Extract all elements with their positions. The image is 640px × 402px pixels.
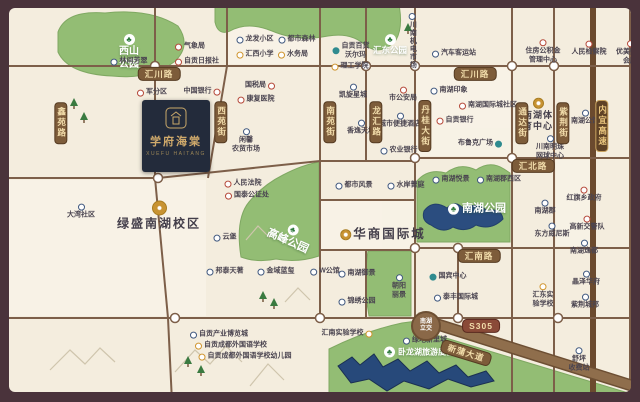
poi-text: 南湖郡西区 <box>486 176 521 185</box>
blue-poi-icon <box>581 240 588 247</box>
poi-text: 东方威尼斯 <box>535 231 570 240</box>
poi-text: 金域蓝玺 <box>267 268 295 277</box>
poi-text: 南湖郡 <box>535 208 556 217</box>
poi-label: 舒坪收费站 <box>569 347 590 373</box>
poi-label: 住房公积金管理中心 <box>526 39 561 65</box>
poi-text: 川南机电市场 <box>408 21 417 69</box>
blue-poi-icon <box>339 299 346 306</box>
poi-text: 住房公积金管理中心 <box>526 47 561 65</box>
red-poi-icon <box>400 87 407 94</box>
poi-text: 红旗乡政府 <box>567 195 602 204</box>
blue-poi-icon <box>388 183 395 190</box>
red-poi-icon <box>584 216 591 223</box>
poi-label: W公馆 <box>310 268 340 277</box>
red-poi-icon <box>627 40 632 47</box>
blue-poi-icon <box>279 37 286 44</box>
poi-label: 自贡成都外国语学校 <box>195 342 267 351</box>
property-logo: 学府海棠 XUEFU HAITANG <box>142 100 210 172</box>
red-poi-icon <box>238 97 245 104</box>
road-badge: 汇北路 <box>512 159 555 173</box>
red-poi-icon <box>137 90 144 97</box>
poi-text: 农业银行 <box>390 147 418 156</box>
poi-text: 城市便捷酒店 <box>379 121 421 130</box>
poi-label: 红旗乡政府 <box>567 187 602 204</box>
poi-label: 龙发小区 <box>237 36 274 45</box>
poi-text: 都市风景 <box>345 182 373 191</box>
poi-label: 水岸菁庭 <box>388 182 425 191</box>
red-poi-icon <box>214 89 221 96</box>
poi-label: 康复医院 <box>238 96 275 105</box>
park-tree-icon: ♣ <box>124 34 135 45</box>
yellow-poi-icon <box>199 354 206 361</box>
red-poi-icon <box>586 41 593 48</box>
poi-label: 汇东实验学校 <box>533 283 554 309</box>
poi-label: 高新交警队 <box>570 216 605 233</box>
poi-text: 布鲁克广场 <box>458 140 493 149</box>
poi-label: 优美购物会所 <box>616 40 631 66</box>
poi-text: 自贡银行 <box>446 117 474 126</box>
blue-poi-icon <box>542 200 549 207</box>
poi-text: 闲馨农贸市场 <box>232 136 260 154</box>
poi-text: 自贡日报社 <box>184 58 219 67</box>
poi-text: 邦泰天著 <box>216 268 244 277</box>
poi-label: 朝阳丽景 <box>392 274 406 300</box>
red-poi-icon <box>581 187 588 194</box>
poi-label: 晶泽华府 <box>572 271 600 288</box>
poi-text: 紫荆城邦 <box>571 302 599 311</box>
poi-text: 自贡产业博览城 <box>199 331 248 340</box>
poi-label: 城市便捷酒店 <box>379 113 421 130</box>
poi-label: 农业银行 <box>381 147 418 156</box>
poi-label: 南湖印象 <box>431 87 468 96</box>
blue-poi-icon <box>350 84 357 91</box>
blue-poi-icon <box>576 347 583 354</box>
park-label: ♣汇东公园 <box>373 34 407 56</box>
poi-label: 绿盛南湖校区 <box>117 201 201 232</box>
blue-poi-icon <box>432 51 439 58</box>
poi-label: 气象局 <box>175 43 205 52</box>
poi-label: 理工学院 <box>332 63 369 72</box>
poi-label: 自贡百货沃尔玛 <box>333 42 370 60</box>
blue-poi-icon <box>396 274 403 281</box>
poi-text: 晶泽华府 <box>572 279 600 288</box>
poi-text: 绿盛南湖校区 <box>117 217 201 232</box>
red-poi-icon <box>225 193 232 200</box>
poi-label: 自贡日报社 <box>175 58 219 67</box>
poi-text: 自贡百货沃尔玛 <box>342 42 370 60</box>
poi-label: 邦泰天著 <box>207 268 244 277</box>
poi-text: 华商国际城 <box>353 227 426 243</box>
poi-text: 国泰公证处 <box>234 192 269 201</box>
park-tree-icon: ♣ <box>448 203 459 214</box>
location-map: 学府海棠 XUEFU HAITANG ♣西山公园♣汇东公园♣高峰公园♣南湖公园♣… <box>9 8 631 392</box>
blue-poi-icon <box>549 223 556 230</box>
poi-text: 南湖悦景 <box>442 176 470 185</box>
poi-label: 汇西小学 <box>237 51 274 60</box>
blue-poi-icon <box>214 235 221 242</box>
blue-poi-icon <box>190 332 197 339</box>
poi-text: 都市森林 <box>288 36 316 45</box>
red-poi-icon <box>437 118 444 125</box>
poi-text: 南湖国际城社区 <box>468 102 517 111</box>
poi-text: 人民法院 <box>234 180 262 189</box>
poi-label: 自贡产业博览城 <box>190 331 248 340</box>
blue-poi-icon <box>339 271 346 278</box>
red-poi-icon <box>540 39 547 46</box>
blue-poi-icon <box>358 120 365 127</box>
red-poi-icon <box>225 181 232 188</box>
poi-text: 汇西小学 <box>246 51 274 60</box>
blue-poi-icon <box>336 183 343 190</box>
poi-label: 军分区 <box>137 89 167 98</box>
road-banner: 龙汇路 <box>369 101 382 143</box>
poi-label: 云堡 <box>214 234 237 243</box>
poi-label: 都市森林 <box>279 36 316 45</box>
poi-label: 南湖郡西区 <box>477 176 521 185</box>
map-screenshot: 学府海棠 XUEFU HAITANG ♣西山公园♣汇东公园♣高峰公园♣南湖公园♣… <box>0 0 640 402</box>
poi-label: 闲馨农贸市场 <box>232 128 260 154</box>
poi-text: 朝阳丽景 <box>392 282 406 300</box>
road-banner: 紫荆街 <box>556 102 569 144</box>
road-badge: 汇川路 <box>138 67 181 81</box>
goldbook-poi-icon <box>151 201 166 216</box>
road-banner: 鑫苑路 <box>54 102 67 144</box>
poi-text: 云堡 <box>223 234 237 243</box>
poi-text: 南湖御景 <box>348 270 376 279</box>
poi-text: 汇东实验学校 <box>533 291 554 309</box>
road-banner: 通达街 <box>515 102 528 144</box>
blue-poi-icon <box>582 110 589 117</box>
interchange-node: 南湖立交 <box>411 311 441 341</box>
poi-text: 高新交警队 <box>570 224 605 233</box>
blue-poi-icon <box>243 128 250 135</box>
poi-text: 泰丰国际城 <box>443 294 478 303</box>
blue-poi-icon <box>434 295 441 302</box>
red-poi-icon <box>175 59 182 66</box>
yellow-poi-icon <box>332 64 339 71</box>
yellow-poi-icon <box>237 52 244 59</box>
poi-label: 市公安局 <box>389 87 417 104</box>
poi-label: 南湖御景 <box>339 270 376 279</box>
poi-text: 气象局 <box>184 43 205 52</box>
blue-poi-icon <box>433 177 440 184</box>
poi-text: W公馆 <box>319 268 340 277</box>
red-poi-icon <box>268 83 275 90</box>
blue-poi-icon <box>583 271 590 278</box>
pavilion-emblem-icon <box>165 107 187 129</box>
blue-poi-icon <box>310 269 317 276</box>
poi-label: 自贡银行 <box>437 117 474 126</box>
blue-poi-icon <box>258 269 265 276</box>
yellow-poi-icon <box>366 331 373 338</box>
poi-text: 自贡成都外国语学校幼儿园 <box>208 353 292 362</box>
poi-text: 军分区 <box>146 89 167 98</box>
property-name: 学府海棠 <box>150 133 202 149</box>
poi-label: 南湖国际城社区 <box>459 102 517 111</box>
gold-poi-icon <box>532 98 543 109</box>
road-badge: 汇南路 <box>458 249 501 263</box>
poi-text: 水务局 <box>287 51 308 60</box>
property-name-latin: XUEFU HAITANG <box>146 151 206 157</box>
road-banner: 内宜高速 <box>595 100 608 152</box>
poi-text: 南湖逸都 <box>570 248 598 257</box>
blue-poi-icon <box>477 177 484 184</box>
poi-text: 林间芳翠 <box>120 58 148 67</box>
poi-label: 都市风景 <box>336 182 373 191</box>
teal-poi-icon <box>430 274 437 281</box>
road-banner: 丹桂大街 <box>418 100 431 152</box>
red-poi-icon <box>459 103 466 110</box>
poi-label: 自贡成都外国语学校幼儿园 <box>199 353 292 362</box>
poi-text: 水岸菁庭 <box>397 182 425 191</box>
poi-text: 南湖印象 <box>440 87 468 96</box>
poi-label: 人民检察院 <box>572 41 607 58</box>
poi-text: 人民检察院 <box>572 49 607 58</box>
park-label: ♣南湖公园 <box>448 203 506 216</box>
poi-label: 大湾社区 <box>67 204 95 221</box>
poi-label: 人民法院 <box>225 180 262 189</box>
poi-label: 川南机电市场 <box>408 13 417 69</box>
poi-text: 优美购物会所 <box>616 48 631 66</box>
yellow-poi-icon <box>195 343 202 350</box>
blue-poi-icon <box>111 59 118 66</box>
poi-label: 凯旋星城 <box>339 84 367 101</box>
poi-label: 布鲁克广场 <box>458 140 502 149</box>
park-tree-icon: ♣ <box>384 347 395 358</box>
poi-text: 汽车客运站 <box>441 50 476 59</box>
yellow-poi-icon <box>540 283 547 290</box>
poi-label: 汽车客运站 <box>432 50 476 59</box>
poi-text: 凯旋星城 <box>339 92 367 101</box>
poi-text: 国宾中心 <box>439 273 467 282</box>
blue-poi-icon <box>582 294 589 301</box>
poi-label: 水务局 <box>278 51 308 60</box>
goldshop-poi-icon <box>340 230 351 241</box>
poi-text: 中国银行 <box>184 88 212 97</box>
blue-poi-icon <box>431 88 438 95</box>
blue-poi-icon <box>403 338 410 345</box>
blue-poi-icon <box>397 113 404 120</box>
poi-text: 舒坪收费站 <box>569 355 590 373</box>
teal-poi-icon <box>495 141 502 148</box>
yellow-poi-icon <box>278 52 285 59</box>
poi-label: 国宾中心 <box>430 273 467 282</box>
poi-label: 泰丰国际城 <box>434 294 478 303</box>
poi-text: 理工学院 <box>341 63 369 72</box>
poi-label: 金域蓝玺 <box>258 268 295 277</box>
park-tree-icon: ♣ <box>384 34 395 45</box>
poi-label: 国泰公证处 <box>225 192 269 201</box>
blue-poi-icon <box>207 269 214 276</box>
blue-poi-icon <box>78 204 85 211</box>
poi-label: 紫荆城邦 <box>571 294 599 311</box>
poi-label: 东方威尼斯 <box>535 223 570 240</box>
poi-text: 自贡成都外国语学校 <box>204 342 267 351</box>
poi-text: 汇南实验学校 <box>322 330 364 339</box>
poi-label: 锦绣公园 <box>339 298 376 307</box>
road-banner: 西苑街 <box>214 101 227 143</box>
poi-text: 市公安局 <box>389 95 417 104</box>
poi-label: 中国银行 <box>184 88 221 97</box>
poi-label: 华商国际城 <box>340 227 426 243</box>
teal-poi-icon <box>333 48 340 55</box>
poi-label: 南湖悦景 <box>433 176 470 185</box>
poi-text: 国税局 <box>245 82 266 91</box>
poi-label: 汇南实验学校 <box>322 330 373 339</box>
poi-label: 南湖郡 <box>535 200 556 217</box>
poi-text: 锦绣公园 <box>348 298 376 307</box>
blue-poi-icon <box>237 37 244 44</box>
blue-poi-icon <box>381 148 388 155</box>
road-badge: S305 <box>462 319 500 333</box>
poi-label: 南湖逸都 <box>570 240 598 257</box>
poi-text: 龙发小区 <box>246 36 274 45</box>
poi-label: 国税局 <box>245 82 275 91</box>
blue-poi-icon <box>409 13 416 20</box>
poi-text: 康复医院 <box>247 96 275 105</box>
poi-text: 大湾社区 <box>67 212 95 221</box>
road-badge: 汇川路 <box>454 67 497 81</box>
road-banner: 南苑街 <box>323 101 336 143</box>
blue-poi-icon <box>547 135 554 142</box>
poi-label: 林间芳翠 <box>111 58 148 67</box>
red-poi-icon <box>175 44 182 51</box>
